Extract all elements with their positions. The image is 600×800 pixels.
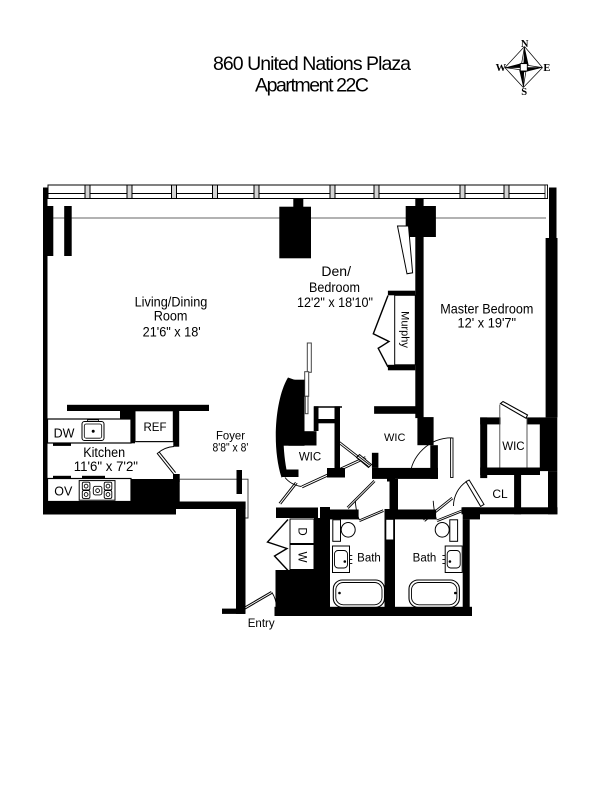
svg-text:Murphy: Murphy — [399, 311, 411, 348]
svg-text:Entry: Entry — [248, 618, 275, 630]
svg-text:Bedroom: Bedroom — [309, 279, 360, 295]
svg-text:11'6" x 7'2": 11'6" x 7'2" — [74, 459, 138, 474]
svg-text:12' x 19'7": 12' x 19'7" — [458, 315, 517, 331]
svg-text:Kitchen: Kitchen — [83, 445, 125, 460]
svg-text:Room: Room — [154, 308, 188, 324]
svg-text:WIC: WIC — [502, 441, 524, 453]
svg-text:E: E — [543, 63, 550, 74]
svg-text:860 United Nations Plaza: 860 United Nations Plaza — [213, 53, 411, 75]
svg-text:21'6" x 18': 21'6" x 18' — [143, 324, 201, 340]
svg-text:CL: CL — [492, 487, 508, 501]
svg-text:Bath: Bath — [357, 553, 381, 565]
svg-text:12'2" x 18'10": 12'2" x 18'10" — [297, 294, 373, 310]
svg-text:W: W — [296, 552, 308, 563]
svg-text:N: N — [521, 39, 529, 50]
svg-text:8'8" x 8': 8'8" x 8' — [213, 441, 249, 455]
svg-text:REF: REF — [144, 422, 167, 434]
svg-text:Den/: Den/ — [321, 263, 351, 279]
svg-text:WIC: WIC — [299, 452, 321, 464]
svg-text:S: S — [521, 87, 527, 98]
svg-text:OV: OV — [54, 485, 73, 499]
svg-text:DW: DW — [54, 427, 75, 441]
svg-text:Bath: Bath — [413, 553, 437, 565]
svg-text:WIC: WIC — [384, 432, 405, 444]
svg-text:W: W — [496, 63, 507, 74]
svg-text:Apartment 22C: Apartment 22C — [255, 74, 369, 96]
svg-text:D: D — [296, 527, 308, 535]
